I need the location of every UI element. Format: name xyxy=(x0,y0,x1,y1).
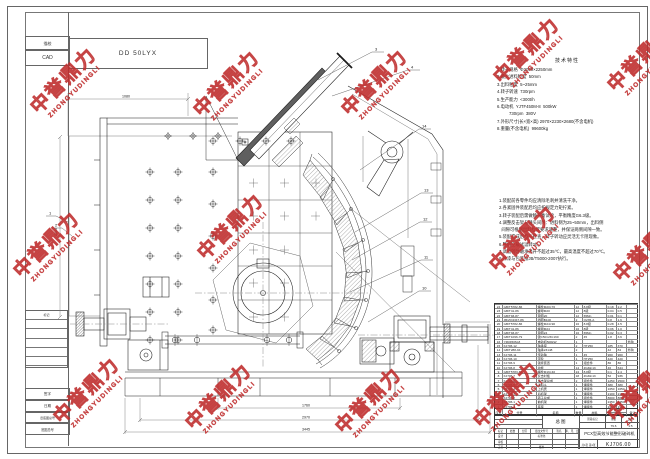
base-frame xyxy=(125,338,462,396)
dim-top: 1080 xyxy=(122,95,130,99)
dim-left: 2680 xyxy=(54,228,58,236)
balloon-leaders xyxy=(46,52,433,322)
balloon-label: 14 xyxy=(422,124,427,129)
balloon-label: 1 xyxy=(49,211,52,216)
main-drawing: 1 2 3 4 14 13 12 11 10 1080 2680 1760 29… xyxy=(0,0,650,459)
right-shaft-assembly xyxy=(390,316,490,372)
balloon-label: 11 xyxy=(424,255,429,260)
left-shaft-assembly xyxy=(76,277,169,339)
dim-bottom-mid: 2970 xyxy=(302,416,310,420)
balloon-label: 4 xyxy=(411,65,414,70)
dim-bottom-outer: 3445 xyxy=(302,428,310,432)
dimension-lines xyxy=(58,93,492,434)
balloon-label: 12 xyxy=(423,217,428,222)
dim-bottom-inner: 1760 xyxy=(302,404,310,408)
balloon-label: 2 xyxy=(55,223,58,228)
balloon-label: 10 xyxy=(422,286,427,291)
balloon-label: 13 xyxy=(424,188,429,193)
impact-liner xyxy=(303,153,372,368)
tie-bar xyxy=(162,332,303,348)
balloon-label: 3 xyxy=(375,47,378,52)
machine-extent-outline xyxy=(69,136,232,316)
feed-chute xyxy=(206,53,352,167)
drawing-sheet: 描校 CAD DD 50LYX 标记 签字 日期 旧底图总号 底图总号 技术特性… xyxy=(0,0,650,459)
